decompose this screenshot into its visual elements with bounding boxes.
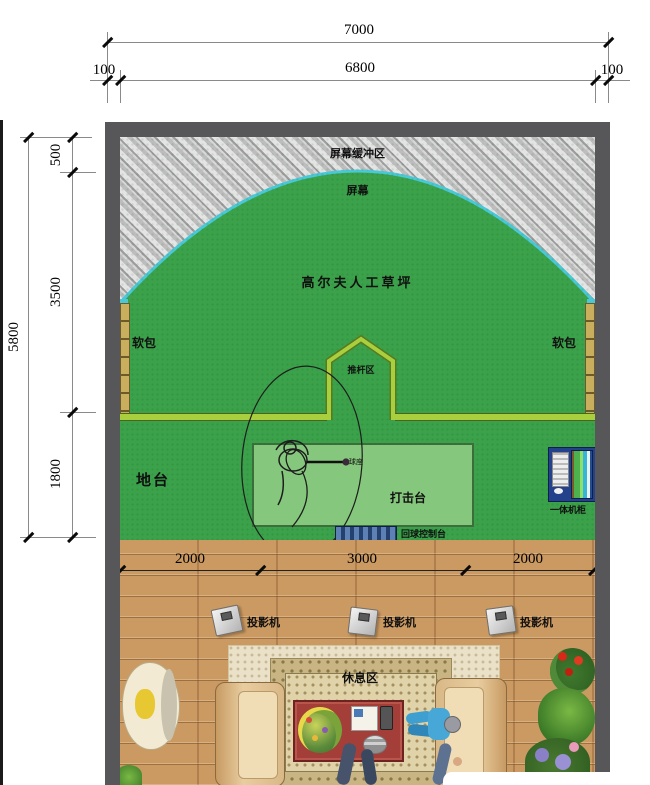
label-platform: 地台 — [136, 469, 170, 490]
tray-card — [354, 709, 363, 717]
dim-500: 500 — [48, 135, 64, 175]
bottom-right-cutoff — [443, 772, 650, 785]
dim-100-right: 100 — [592, 62, 632, 78]
dim-7000: 7000 — [319, 22, 399, 38]
dim-floor-2000-left: 2000 — [150, 551, 230, 567]
projector-lens — [358, 612, 370, 621]
soft-pad-strip-right — [585, 303, 595, 417]
flower-dot — [565, 668, 573, 676]
remote — [380, 706, 393, 730]
flower-dot — [535, 748, 549, 762]
label-soft-pad-right: 软包 — [552, 334, 576, 351]
flower-bouquet — [298, 707, 342, 753]
dim-line-7000 — [107, 42, 608, 43]
dim-100-left: 100 — [84, 62, 124, 78]
dim-line-segments — [72, 137, 73, 537]
projector-lens — [495, 611, 507, 620]
lounge-throw — [135, 689, 155, 719]
dim-line-5800 — [28, 137, 29, 537]
projector-icon-1 — [210, 604, 243, 636]
label-projector-3: 投影机 — [520, 614, 553, 630]
seated-person — [406, 698, 458, 750]
label-projector-1: 投影机 — [247, 614, 280, 630]
floor-plan-page: 7000 100 6800 100 5800 500 3500 1800 屏幕缓… — [0, 0, 650, 785]
extension-line — [60, 172, 96, 173]
extension-line — [20, 537, 96, 538]
flower-dot — [569, 742, 579, 752]
label-cabinet: 一体机柜 — [538, 503, 595, 516]
sofa-cushion — [238, 691, 278, 779]
label-ball-return: 回球控制台 — [401, 527, 446, 540]
label-ball-tee: 球座 — [349, 457, 363, 467]
label-soft-pad-left: 软包 — [132, 334, 156, 351]
plant-foliage — [538, 688, 595, 746]
lounge-chair — [122, 662, 180, 750]
room-walls: 屏幕缓冲区 屏幕 高尔夫人工草坪 软包 软包 推杆区 地台 打击台 — [105, 122, 610, 785]
dim-6800: 6800 — [320, 60, 400, 76]
label-screen-buffer: 屏幕缓冲区 — [120, 145, 595, 161]
plant-red-flowers — [550, 648, 595, 694]
plant-small — [120, 765, 142, 785]
sofa-left — [215, 682, 285, 785]
cabinet-panel — [552, 452, 569, 487]
dim-1800: 1800 — [48, 449, 64, 499]
flower-dot — [555, 754, 571, 770]
soft-pad-strip-left — [120, 303, 130, 417]
flower-dot — [312, 735, 318, 741]
label-projector-2: 投影机 — [383, 614, 416, 630]
label-hitting-mat: 打击台 — [390, 489, 426, 506]
room-interior: 屏幕缓冲区 屏幕 高尔夫人工草坪 软包 软包 推杆区 地台 打击台 — [120, 137, 595, 785]
label-turf: 高尔夫人工草坪 — [120, 272, 595, 291]
extension-line — [60, 412, 96, 413]
person-head — [444, 716, 461, 733]
dim-line-6800 — [90, 80, 630, 81]
flower-dot — [574, 656, 583, 665]
projector-lens — [220, 611, 232, 621]
floor-dim-line — [120, 570, 595, 571]
cabinet-screen — [571, 450, 593, 499]
dim-5800: 5800 — [6, 307, 22, 367]
dim-3500: 3500 — [48, 267, 64, 317]
flower-dot — [322, 727, 328, 733]
tray — [351, 706, 378, 731]
label-rest-area: 休息区 — [330, 669, 390, 686]
projector-icon-3 — [485, 605, 516, 636]
flower-dot — [306, 717, 312, 723]
projector-icon-2 — [347, 606, 378, 636]
dim-floor-2000-right: 2000 — [488, 551, 568, 567]
label-screen: 屏幕 — [120, 182, 595, 198]
cabinet-knob — [554, 488, 563, 494]
cabinet — [548, 447, 595, 502]
lounge-back — [161, 669, 177, 741]
ball-return-console — [335, 526, 397, 541]
adjacent-drawing-edge — [0, 120, 3, 785]
person-hand — [453, 757, 462, 766]
platform-boundary-right — [395, 413, 595, 421]
dim-floor-3000: 3000 — [322, 551, 402, 567]
flower-dot — [558, 652, 567, 661]
